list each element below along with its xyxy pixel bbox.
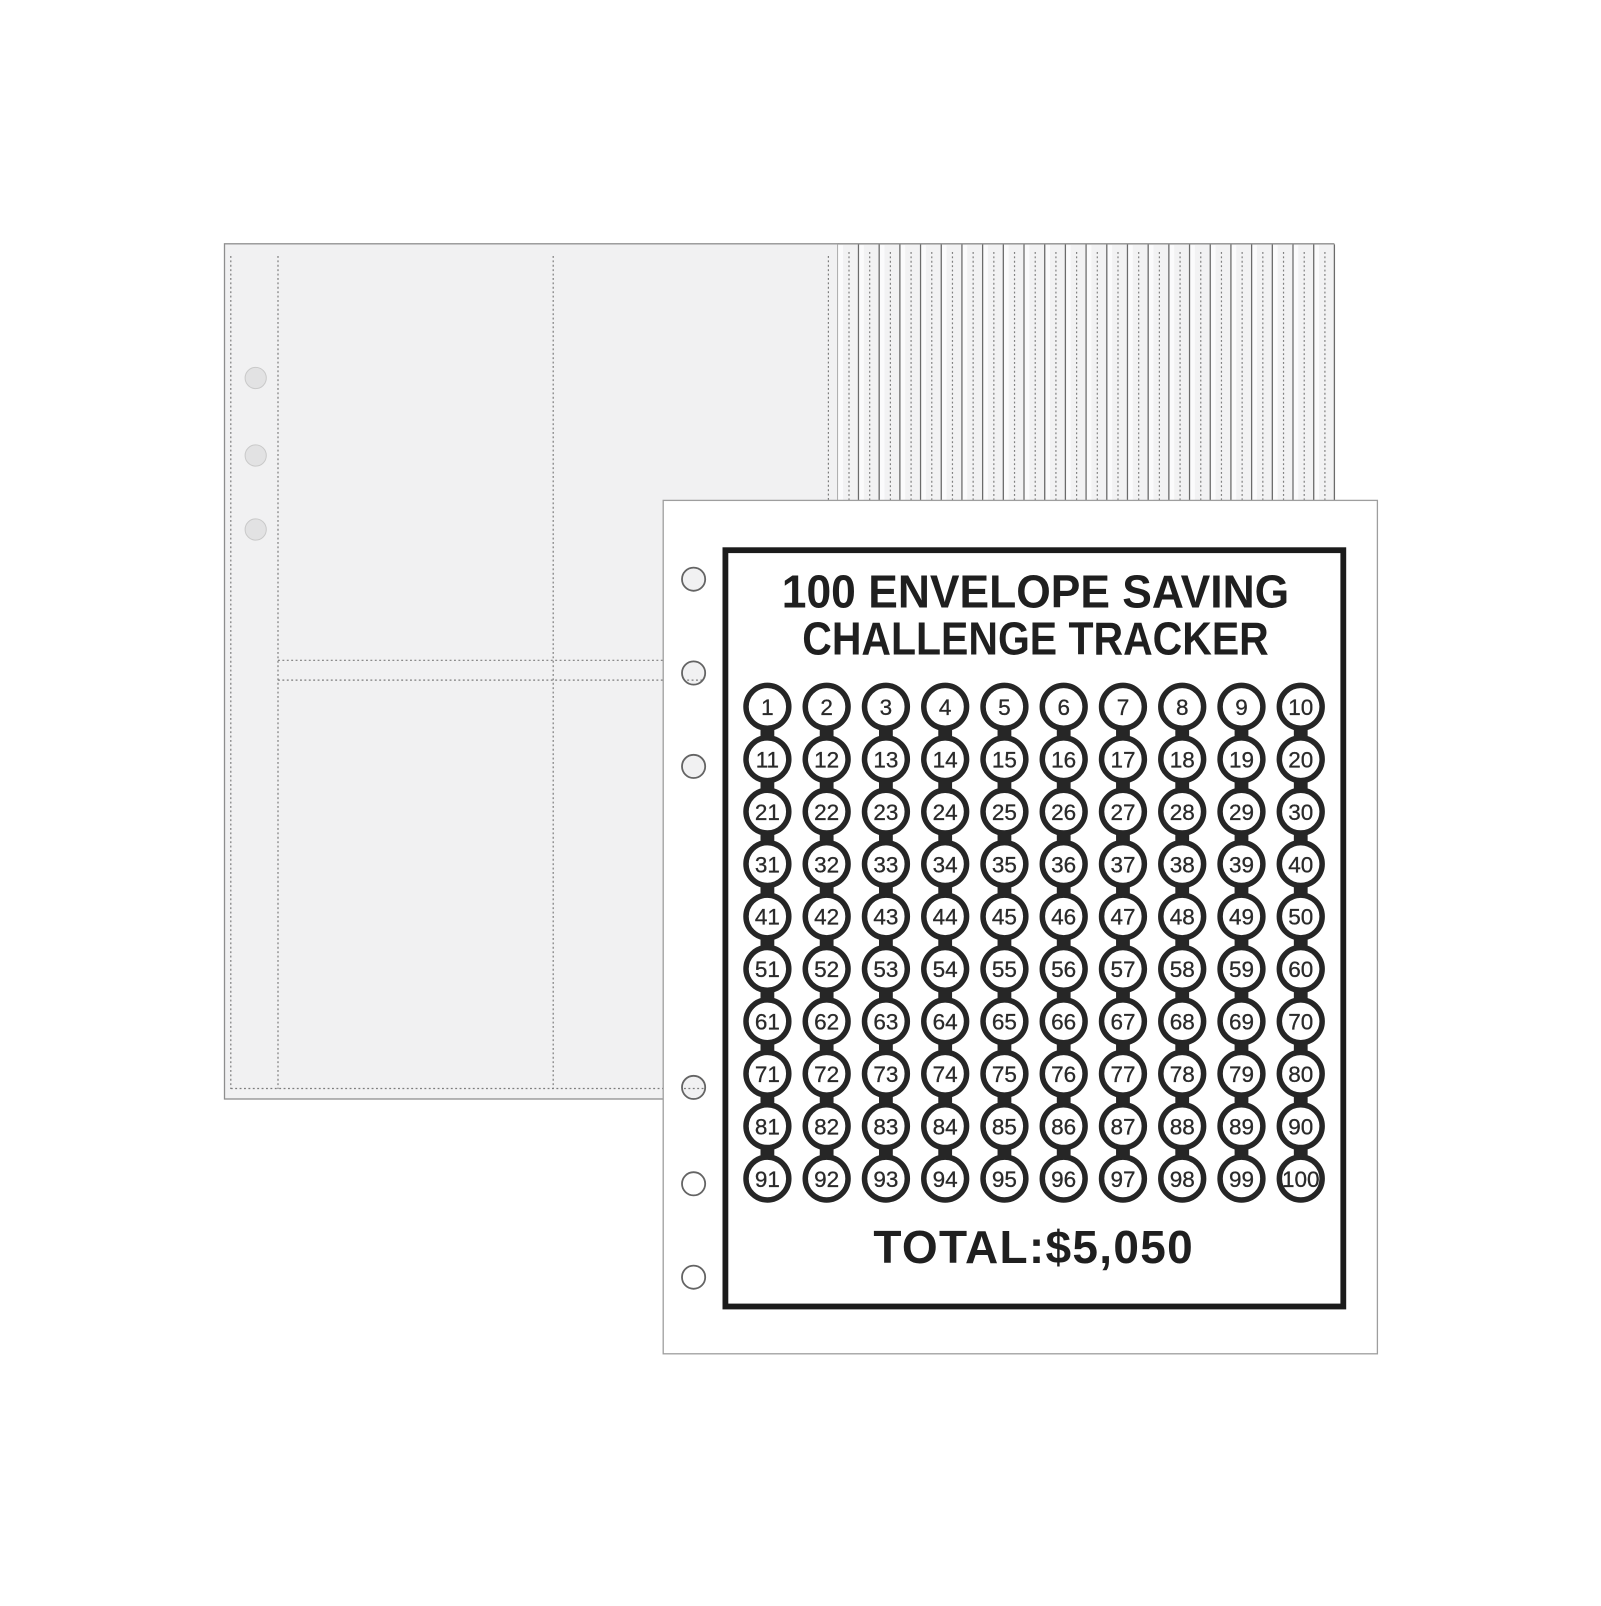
svg-text:1: 1 bbox=[761, 695, 774, 720]
svg-text:24: 24 bbox=[933, 800, 958, 825]
svg-text:17: 17 bbox=[1110, 747, 1135, 772]
svg-text:21: 21 bbox=[755, 800, 780, 825]
svg-text:20: 20 bbox=[1288, 747, 1313, 772]
svg-text:81: 81 bbox=[755, 1114, 780, 1139]
svg-text:30: 30 bbox=[1288, 800, 1313, 825]
svg-text:84: 84 bbox=[933, 1114, 958, 1139]
svg-text:70: 70 bbox=[1288, 1010, 1313, 1035]
svg-text:96: 96 bbox=[1051, 1167, 1076, 1192]
svg-text:80: 80 bbox=[1288, 1062, 1313, 1087]
svg-text:67: 67 bbox=[1110, 1010, 1135, 1035]
svg-text:99: 99 bbox=[1229, 1167, 1254, 1192]
svg-text:59: 59 bbox=[1229, 957, 1254, 982]
svg-text:86: 86 bbox=[1051, 1114, 1076, 1139]
svg-text:2: 2 bbox=[820, 695, 833, 720]
svg-text:52: 52 bbox=[814, 957, 839, 982]
svg-text:89: 89 bbox=[1229, 1114, 1254, 1139]
svg-text:40: 40 bbox=[1288, 852, 1313, 877]
svg-text:29: 29 bbox=[1229, 800, 1254, 825]
svg-text:27: 27 bbox=[1110, 800, 1135, 825]
svg-text:43: 43 bbox=[873, 905, 898, 930]
svg-text:33: 33 bbox=[873, 852, 898, 877]
svg-text:47: 47 bbox=[1110, 905, 1135, 930]
svg-text:90: 90 bbox=[1288, 1114, 1313, 1139]
svg-text:42: 42 bbox=[814, 905, 839, 930]
svg-text:62: 62 bbox=[814, 1010, 839, 1035]
svg-text:71: 71 bbox=[755, 1062, 780, 1087]
svg-text:11: 11 bbox=[756, 747, 779, 772]
svg-text:53: 53 bbox=[873, 957, 898, 982]
svg-text:23: 23 bbox=[873, 800, 898, 825]
svg-text:85: 85 bbox=[992, 1114, 1017, 1139]
svg-text:75: 75 bbox=[992, 1062, 1017, 1087]
svg-text:78: 78 bbox=[1170, 1062, 1195, 1087]
svg-text:66: 66 bbox=[1051, 1010, 1076, 1035]
svg-text:14: 14 bbox=[933, 747, 958, 772]
svg-text:38: 38 bbox=[1170, 852, 1195, 877]
svg-text:32: 32 bbox=[814, 852, 839, 877]
svg-text:58: 58 bbox=[1170, 957, 1195, 982]
svg-text:28: 28 bbox=[1170, 800, 1195, 825]
svg-text:31: 31 bbox=[755, 852, 780, 877]
svg-text:97: 97 bbox=[1110, 1167, 1135, 1192]
svg-text:77: 77 bbox=[1110, 1062, 1135, 1087]
svg-text:83: 83 bbox=[873, 1114, 898, 1139]
svg-text:98: 98 bbox=[1170, 1167, 1195, 1192]
svg-text:72: 72 bbox=[814, 1062, 839, 1087]
svg-text:7: 7 bbox=[1117, 695, 1130, 720]
svg-text:64: 64 bbox=[933, 1010, 958, 1035]
svg-text:88: 88 bbox=[1170, 1114, 1195, 1139]
svg-text:10: 10 bbox=[1288, 695, 1313, 720]
svg-text:37: 37 bbox=[1110, 852, 1135, 877]
svg-text:49: 49 bbox=[1229, 905, 1254, 930]
svg-text:34: 34 bbox=[933, 852, 958, 877]
svg-text:5: 5 bbox=[998, 695, 1011, 720]
svg-text:12: 12 bbox=[814, 747, 839, 772]
svg-text:79: 79 bbox=[1229, 1062, 1254, 1087]
svg-text:100: 100 bbox=[1282, 1167, 1320, 1192]
svg-text:4: 4 bbox=[939, 695, 952, 720]
svg-text:45: 45 bbox=[992, 905, 1017, 930]
svg-text:41: 41 bbox=[755, 905, 780, 930]
svg-text:74: 74 bbox=[933, 1062, 958, 1087]
svg-text:13: 13 bbox=[873, 747, 898, 772]
svg-text:CHALLENGE TRACKER: CHALLENGE TRACKER bbox=[802, 613, 1268, 665]
svg-text:50: 50 bbox=[1288, 905, 1313, 930]
svg-text:46: 46 bbox=[1051, 905, 1076, 930]
svg-text:65: 65 bbox=[992, 1010, 1017, 1035]
svg-text:93: 93 bbox=[873, 1167, 898, 1192]
svg-text:61: 61 bbox=[755, 1010, 780, 1035]
svg-text:18: 18 bbox=[1170, 747, 1195, 772]
svg-text:15: 15 bbox=[992, 747, 1017, 772]
svg-text:56: 56 bbox=[1051, 957, 1076, 982]
svg-text:48: 48 bbox=[1170, 905, 1195, 930]
svg-text:82: 82 bbox=[814, 1114, 839, 1139]
svg-text:9: 9 bbox=[1235, 695, 1248, 720]
svg-text:6: 6 bbox=[1057, 695, 1070, 720]
svg-text:36: 36 bbox=[1051, 852, 1076, 877]
svg-text:87: 87 bbox=[1110, 1114, 1135, 1139]
svg-text:92: 92 bbox=[814, 1167, 839, 1192]
svg-text:69: 69 bbox=[1229, 1010, 1254, 1035]
svg-text:8: 8 bbox=[1176, 695, 1189, 720]
svg-text:19: 19 bbox=[1229, 747, 1254, 772]
svg-text:57: 57 bbox=[1110, 957, 1135, 982]
svg-text:16: 16 bbox=[1051, 747, 1076, 772]
svg-text:100 ENVELOPE SAVING: 100 ENVELOPE SAVING bbox=[782, 566, 1289, 618]
svg-text:60: 60 bbox=[1288, 957, 1313, 982]
svg-text:3: 3 bbox=[880, 695, 893, 720]
svg-text:22: 22 bbox=[814, 800, 839, 825]
svg-text:35: 35 bbox=[992, 852, 1017, 877]
svg-text:TOTAL:$5,050: TOTAL:$5,050 bbox=[873, 1221, 1194, 1273]
svg-text:54: 54 bbox=[933, 957, 958, 982]
svg-text:25: 25 bbox=[992, 800, 1017, 825]
svg-text:26: 26 bbox=[1051, 800, 1076, 825]
svg-text:63: 63 bbox=[873, 1010, 898, 1035]
svg-text:91: 91 bbox=[755, 1167, 780, 1192]
svg-text:55: 55 bbox=[992, 957, 1017, 982]
svg-text:76: 76 bbox=[1051, 1062, 1076, 1087]
svg-text:94: 94 bbox=[933, 1167, 958, 1192]
svg-text:95: 95 bbox=[992, 1167, 1017, 1192]
svg-text:68: 68 bbox=[1170, 1010, 1195, 1035]
svg-text:39: 39 bbox=[1229, 852, 1254, 877]
svg-text:51: 51 bbox=[755, 957, 780, 982]
svg-text:44: 44 bbox=[933, 905, 958, 930]
svg-text:73: 73 bbox=[873, 1062, 898, 1087]
